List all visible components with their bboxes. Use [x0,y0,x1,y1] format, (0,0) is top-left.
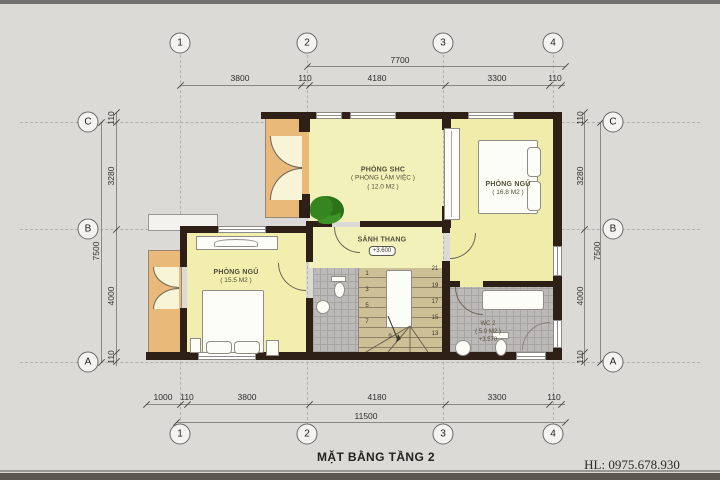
grid-bubble-3-top: 3 [433,33,454,54]
nightstand [266,340,279,356]
level-marker-hall: +3.600 [369,246,396,256]
wall-bed2-right [306,226,313,262]
shelf-item [214,239,258,247]
dim-right-seg: 3280 [575,167,585,186]
dim-top-total: 7700 [391,55,410,65]
dim-tick [562,419,569,426]
room-label-shc: PHÒNG SHC ( PHÒNG LÀM VIỆC ) ( 12.0 M2 ) [351,166,415,193]
stair-hall-name: SẢNH THANG [358,235,407,244]
stair-step-number: 3 [365,287,368,293]
wc2-name: WC 2 [475,320,501,328]
dim-top-seg: 110 [298,73,312,83]
grid-bubble-A-left: A [78,352,99,373]
stair-step-number: 13 [432,331,439,337]
pillow [206,341,232,354]
contact-watermark: HL: 0975.678.930 [584,457,680,473]
room-bed1-area: ( 16.8 M2 ) [486,189,531,198]
wc2-area: ( 5.0 M2 ) [475,328,501,336]
dim-line [146,404,565,405]
stair-step-number: 5 [365,303,368,309]
top-border-strip [0,0,720,4]
wall-hall-top [360,221,443,227]
dim-left-seg: 3280 [106,167,116,186]
window [316,112,342,119]
grid-bubble-2-bottom: 2 [297,424,318,445]
grid-bubble-1-top: 1 [170,33,191,54]
wardrobe [444,128,460,220]
pillow [527,147,541,177]
wall-bed1-west [442,261,450,360]
wall-wc2-top [483,281,553,287]
room-shc-area: ( 12.0 M2 ) [351,184,415,193]
dim-bottom-total: 11500 [354,411,377,421]
window [218,226,266,233]
window [350,112,396,119]
dim-top-seg: 3800 [231,73,250,83]
sink [455,340,471,356]
dim-bottom-seg: 3300 [488,392,507,402]
stair-step-number: 1 [365,271,368,277]
stair-step-number: 17 [432,299,439,305]
dim-top-seg: 110 [548,73,562,83]
wall-bed1-west [442,227,450,233]
sink [316,300,330,314]
grid-bubble-1-bottom: 1 [170,424,191,445]
window [553,320,562,348]
room-shc-sub: ( PHÒNG LÀM VIỆC ) [351,175,415,184]
dim-line [584,113,585,366]
window [553,246,562,276]
dim-tick [562,63,569,70]
window [468,112,514,119]
room-bed2-name: PHÒNG NGỦ [214,268,259,277]
floor-plan-drawing: 7700 3800 110 4180 3300 110 1000 110 380… [0,0,720,480]
dim-right-total: 7500 [592,242,602,261]
plant [310,196,344,224]
room-label-bed1: PHÒNG NGỦ ( 16.8 M2 ) [486,180,531,198]
room-label-wc2: WC 2 ( 5.0 M2 ) +3.570 [475,320,501,344]
grid-bubble-4-bottom: 4 [543,424,564,445]
dim-line [101,122,102,362]
dim-line [307,66,565,67]
pillow [234,341,260,354]
dim-right-seg: 4000 [575,287,585,306]
dim-top-seg: 3300 [488,73,507,83]
grid-line-3 [443,55,444,425]
dim-line [116,113,117,366]
bathtub [482,290,544,310]
dim-line [180,85,565,86]
stair-winders-arrow [358,268,443,352]
dim-bottom-seg: 4180 [368,392,387,402]
dim-left-total: 7500 [91,242,101,261]
window [516,352,546,360]
grid-bubble-2-top: 2 [297,33,318,54]
dim-top-seg: 4180 [368,73,387,83]
dim-left-seg: 4000 [106,287,116,306]
stair-step-number: 7 [365,319,368,325]
wc2-level: +3.570 [475,336,501,344]
dim-bottom-seg: 110 [547,392,561,402]
stair-step-number: 9 [388,334,391,340]
nightstand [190,338,201,353]
grid-bubble-C-left: C [78,112,99,133]
wall-bed2-right [306,298,313,360]
dim-bottom-seg: 1000 [154,392,173,402]
grid-bubble-4-top: 4 [543,33,564,54]
room-label-stair-hall: SẢNH THANG [358,235,407,244]
wardrobe-rail [451,131,452,217]
drawing-title: MẶT BẰNG TẦNG 2 [317,450,435,464]
dim-line [176,422,565,423]
stair-step-number: 15 [432,315,439,321]
room-bed1-name: PHÒNG NGỦ [486,180,531,189]
wall-bed2-left [180,308,187,356]
stair-step-number: 21 [432,266,439,272]
toilet-bowl [334,282,345,298]
bottom-border-strip [0,473,720,480]
grid-bubble-B-right: B [603,219,624,240]
grid-bubble-C-right: C [603,112,624,133]
room-bed2-area: ( 15.5 M2 ) [214,277,259,286]
grid-bubble-B-left: B [78,219,99,240]
room-label-bed2: PHÒNG NGỦ ( 15.5 M2 ) [214,268,259,286]
wall-pier [299,112,310,132]
stair-step-number: 19 [432,283,439,289]
dim-bottom-seg: 3800 [238,392,257,402]
grid-bubble-A-right: A [603,352,624,373]
grid-bubble-3-bottom: 3 [433,424,454,445]
